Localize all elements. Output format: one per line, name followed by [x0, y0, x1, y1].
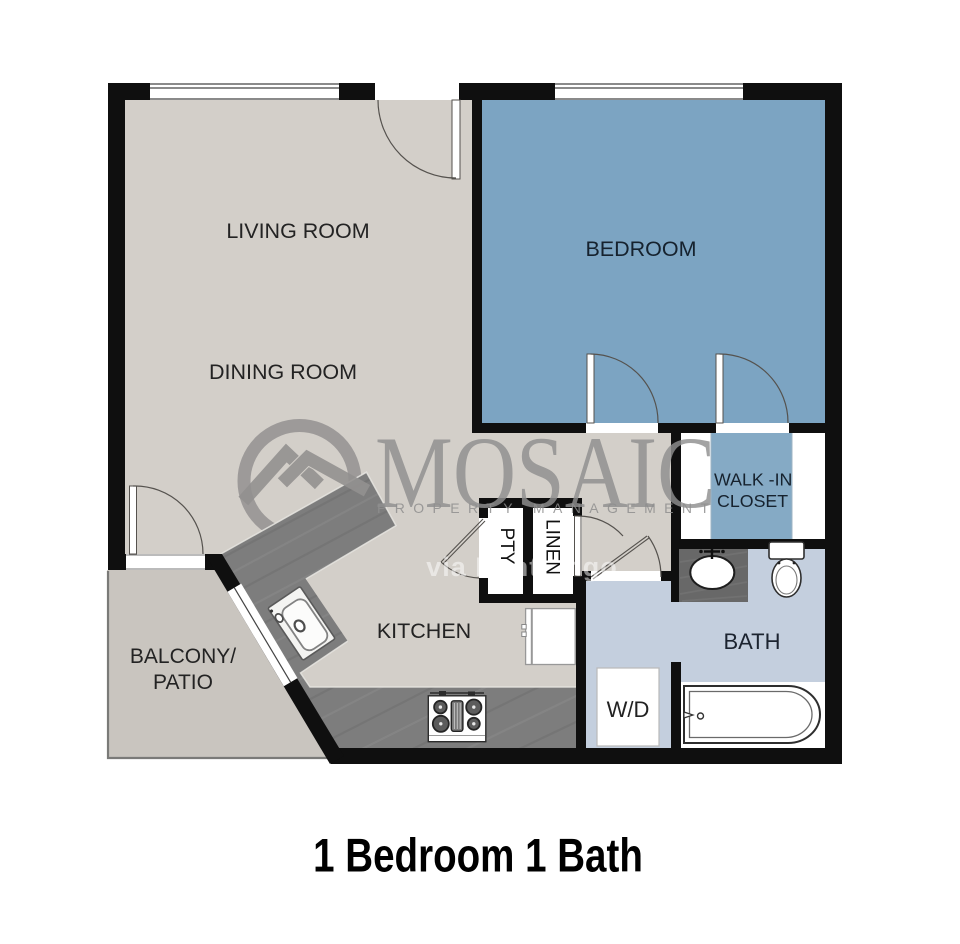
svg-text:CLOSET: CLOSET [717, 491, 788, 511]
svg-text:BALCONY/: BALCONY/ [130, 645, 236, 668]
svg-text:PATIO: PATIO [153, 671, 213, 694]
svg-text:PROPERTY MANAGEMENT: PROPERTY MANAGEMENT [377, 500, 717, 516]
svg-text:KITCHEN: KITCHEN [377, 619, 471, 643]
svg-text:via RentLingo: via RentLingo [426, 552, 618, 582]
svg-text:LINEN: LINEN [542, 519, 563, 575]
svg-text:BEDROOM: BEDROOM [585, 237, 696, 261]
svg-text:LIVING ROOM: LIVING ROOM [226, 219, 369, 243]
svg-text:BATH: BATH [723, 629, 780, 654]
svg-text:PTY: PTY [496, 528, 517, 565]
svg-text:DINING ROOM: DINING ROOM [209, 360, 357, 384]
svg-text:W/D: W/D [607, 697, 650, 722]
svg-text:WALK -IN: WALK -IN [714, 470, 792, 490]
svg-text:1 Bedroom 1 Bath: 1 Bedroom 1 Bath [313, 830, 643, 882]
